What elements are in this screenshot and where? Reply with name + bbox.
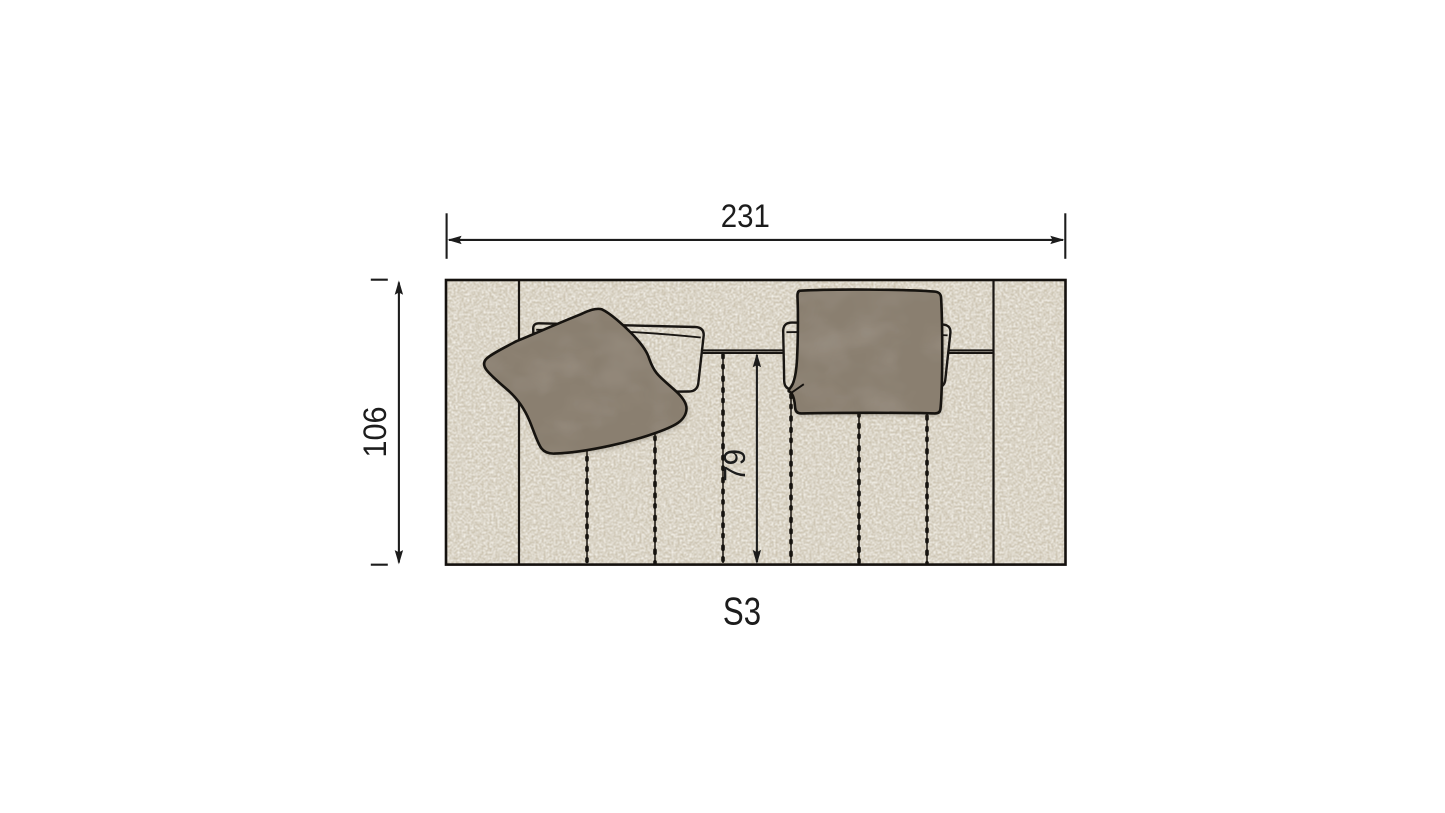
svg-text:79: 79 [718, 449, 752, 482]
svg-text:S3: S3 [723, 590, 761, 633]
svg-text:231: 231 [721, 198, 770, 234]
svg-text:106: 106 [357, 406, 393, 457]
